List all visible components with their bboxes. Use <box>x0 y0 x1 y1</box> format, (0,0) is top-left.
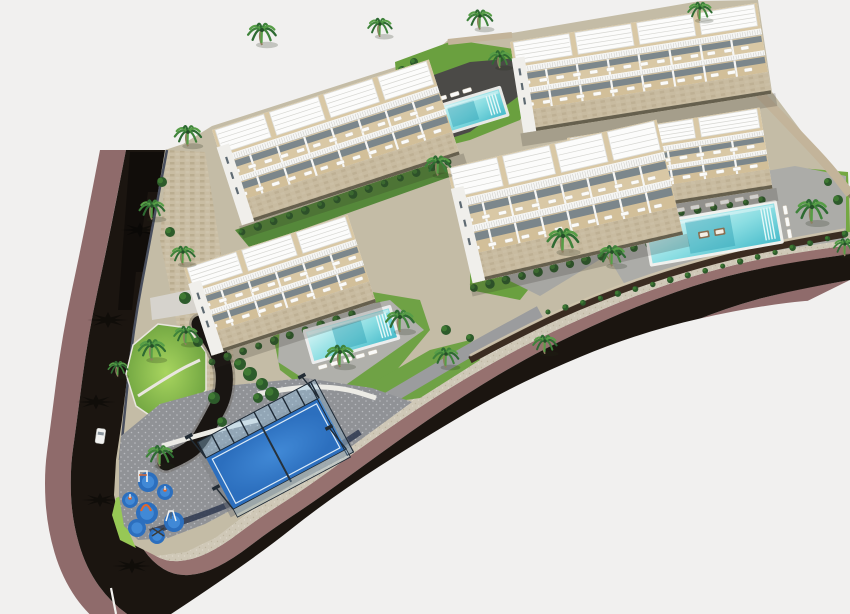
palm-shadow <box>154 463 175 469</box>
bush <box>256 378 268 390</box>
bush <box>807 240 813 246</box>
palm-shadow <box>256 42 278 48</box>
palm-crown <box>181 250 184 253</box>
bush <box>208 392 220 404</box>
palm-shadow <box>606 263 627 269</box>
palm-shadow <box>178 262 197 267</box>
bush <box>755 254 761 260</box>
bush <box>720 264 725 269</box>
bush <box>562 304 568 310</box>
palm-crown <box>561 234 565 238</box>
bush <box>833 195 843 205</box>
bush <box>466 334 474 342</box>
palm-shadow <box>805 220 829 227</box>
palm-shadow <box>334 364 356 370</box>
bush <box>737 258 743 264</box>
tree-shadow <box>113 559 152 574</box>
palm-crown <box>498 54 501 57</box>
play-pad-inner <box>168 516 180 528</box>
palm-shadow <box>181 342 200 347</box>
palm-crown <box>810 205 814 209</box>
palm-shadow <box>394 329 416 335</box>
palm-crown <box>698 6 701 9</box>
palm-shadow <box>475 27 495 33</box>
bush <box>702 268 708 274</box>
bush <box>165 227 175 237</box>
palm-crown <box>398 315 402 319</box>
bush <box>842 231 849 238</box>
bush <box>157 177 167 187</box>
palm-shadow <box>147 217 167 223</box>
bush <box>824 178 832 186</box>
bush <box>179 292 191 304</box>
palm-crown <box>260 28 264 32</box>
bush <box>772 250 777 255</box>
palm-crown <box>843 242 846 245</box>
palm-shadow <box>556 249 580 256</box>
palm-shadow <box>441 365 461 371</box>
play-pad-inner <box>131 522 142 533</box>
bush <box>825 236 830 241</box>
palm-crown <box>150 204 154 208</box>
tree-shadow <box>77 395 116 410</box>
bush <box>265 387 279 401</box>
palm-crown <box>543 339 546 342</box>
bush <box>580 300 586 306</box>
palm-shadow <box>375 34 394 39</box>
bush <box>545 309 550 314</box>
palm-shadow <box>146 357 167 363</box>
palm-crown <box>150 344 154 348</box>
palm-crown <box>184 330 187 333</box>
palm-shadow <box>182 143 203 149</box>
palm-crown <box>338 350 342 354</box>
bush <box>667 277 674 284</box>
palm-crown <box>378 22 381 25</box>
palm-shadow <box>495 65 513 70</box>
palm-crown <box>117 365 120 368</box>
palm-shadow <box>540 351 559 356</box>
bush <box>253 393 263 403</box>
render-canvas <box>0 0 850 614</box>
bush <box>632 286 638 292</box>
play-pad-inner <box>142 476 154 488</box>
parked-car <box>95 428 106 444</box>
aerial-site-render <box>0 0 850 614</box>
palm-crown <box>478 14 482 18</box>
bush <box>789 245 795 251</box>
palm-crown <box>186 130 190 134</box>
bush <box>243 367 257 381</box>
palm-crown <box>610 250 614 254</box>
bush <box>685 272 691 278</box>
tree-shadow <box>82 493 118 507</box>
bush <box>615 290 621 296</box>
bush <box>650 282 655 287</box>
palm-crown <box>158 450 162 454</box>
palm-shadow <box>695 18 714 23</box>
bush <box>217 417 227 427</box>
bush <box>441 325 451 335</box>
palm-shadow <box>114 374 129 378</box>
palm-shadow <box>433 173 453 179</box>
tree-shadow <box>87 312 129 328</box>
bush <box>598 296 603 301</box>
palm-crown <box>444 352 448 356</box>
palm-crown <box>436 160 440 164</box>
